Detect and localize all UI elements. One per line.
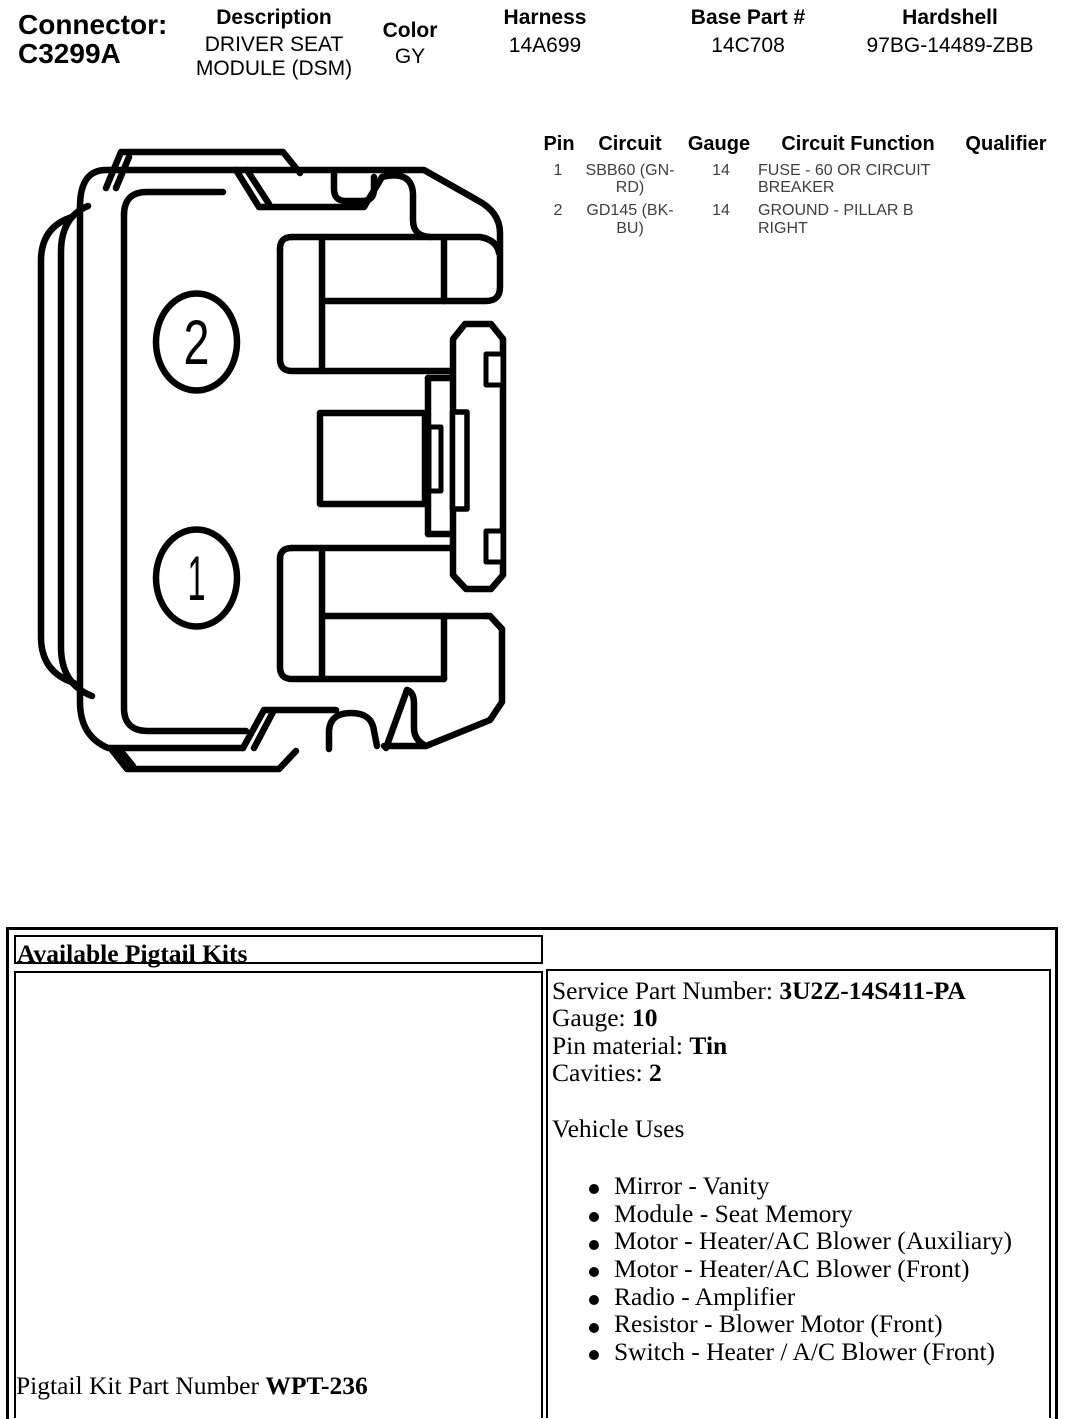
svg-text:1: 1 [188,544,206,614]
svg-text:2: 2 [184,308,210,378]
